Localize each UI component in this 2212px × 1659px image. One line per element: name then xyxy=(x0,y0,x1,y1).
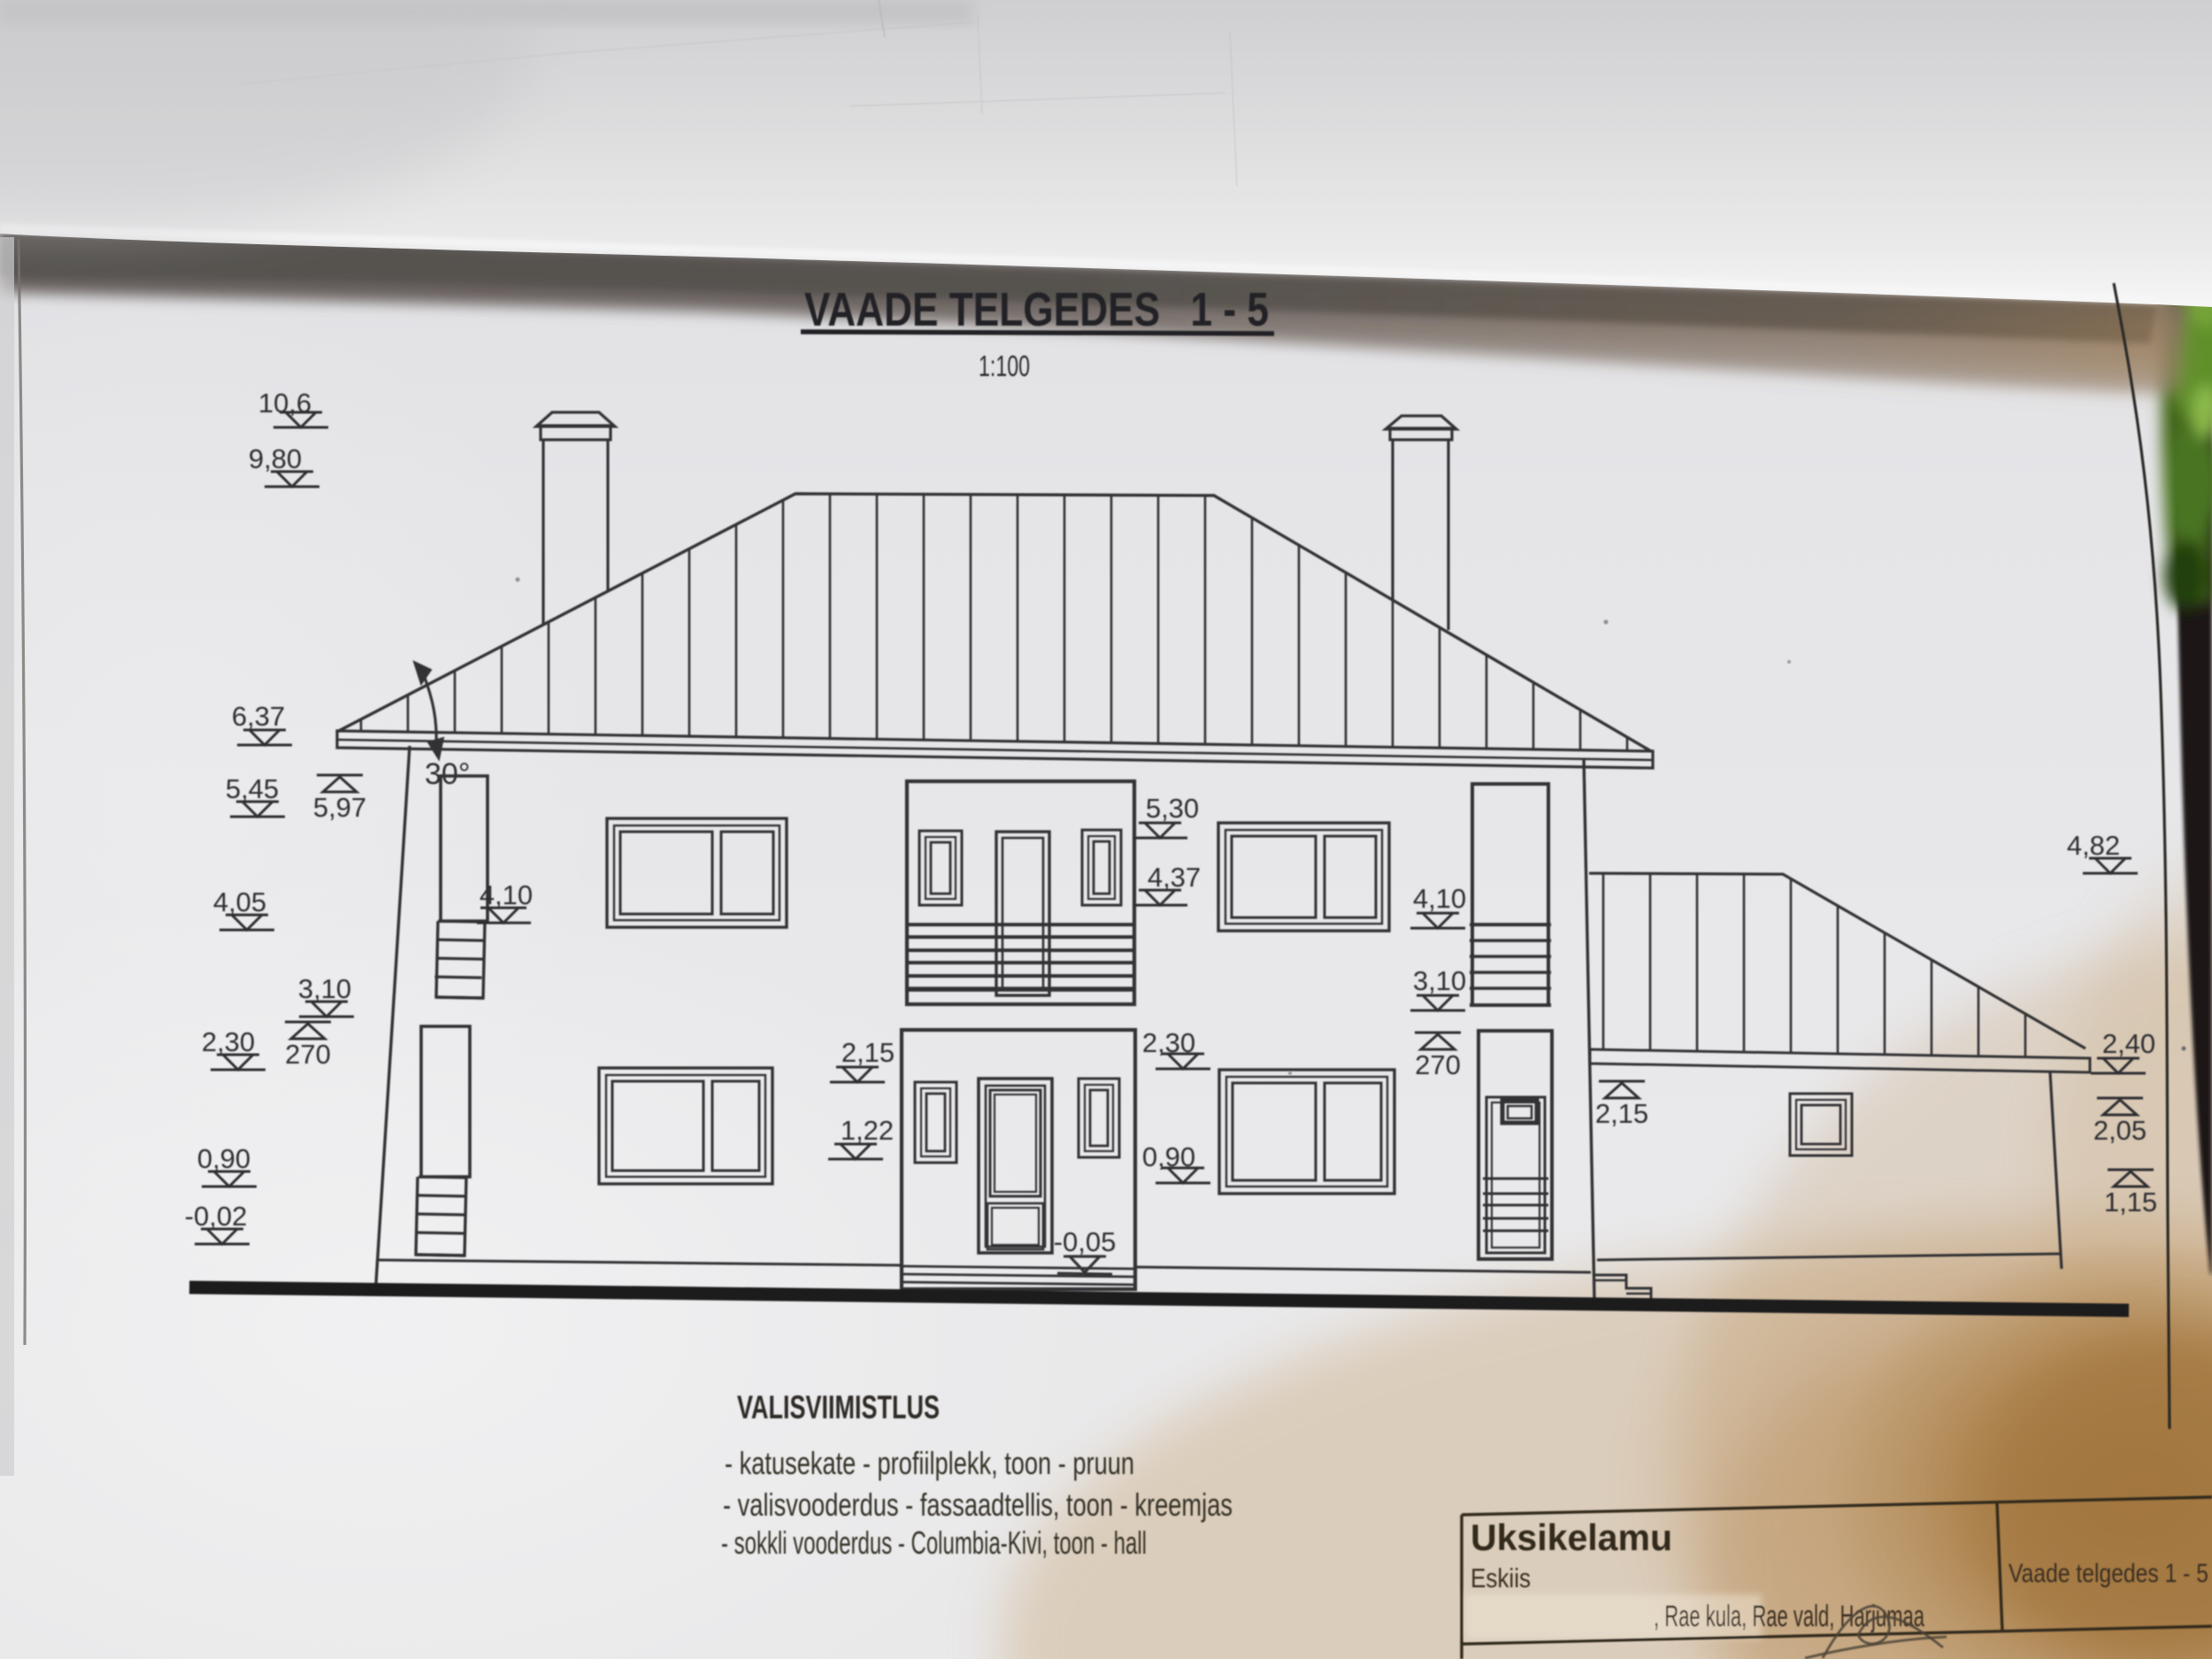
svg-text:1,22: 1,22 xyxy=(841,1115,894,1146)
svg-text:- valisvooderdus - fassaadtell: - valisvooderdus - fassaadtellis, toon -… xyxy=(723,1486,1233,1523)
svg-text:2,15: 2,15 xyxy=(1595,1098,1648,1129)
svg-text:2,15: 2,15 xyxy=(841,1037,895,1068)
svg-text:10,6: 10,6 xyxy=(258,388,311,419)
svg-text:3,10: 3,10 xyxy=(1413,965,1466,996)
svg-text:-0,05: -0,05 xyxy=(1054,1226,1117,1257)
svg-text:- katusekate - profiilplekk, t: - katusekate - profiilplekk, toon - pruu… xyxy=(725,1445,1134,1481)
svg-text:VAADE TELGEDES 1 - 5: VAADE TELGEDES 1 - 5 xyxy=(804,283,1269,336)
svg-text:5,30: 5,30 xyxy=(1146,793,1199,824)
svg-text:5,97: 5,97 xyxy=(313,792,366,823)
svg-text:5,45: 5,45 xyxy=(226,773,279,804)
svg-text:4,10: 4,10 xyxy=(480,879,533,910)
svg-text:6,37: 6,37 xyxy=(232,701,285,732)
svg-text:2,40: 2,40 xyxy=(2102,1028,2155,1059)
svg-text:-0,02: -0,02 xyxy=(185,1201,248,1232)
svg-text:1:100: 1:100 xyxy=(979,349,1030,382)
svg-text:270: 270 xyxy=(285,1039,331,1070)
svg-text:4,10: 4,10 xyxy=(1413,883,1466,914)
svg-text:4,82: 4,82 xyxy=(2067,830,2120,861)
svg-text:30°: 30° xyxy=(425,757,470,791)
svg-text:9,80: 9,80 xyxy=(249,443,302,474)
svg-text:1,15: 1,15 xyxy=(2104,1187,2157,1217)
svg-text:Uksikelamu: Uksikelamu xyxy=(1471,1517,1672,1558)
svg-text:4,37: 4,37 xyxy=(1148,862,1201,893)
svg-text:0,90: 0,90 xyxy=(197,1143,250,1174)
svg-text:VALISVIIMISTLUS: VALISVIIMISTLUS xyxy=(737,1389,940,1425)
svg-text:270: 270 xyxy=(1415,1049,1461,1080)
svg-text:4,05: 4,05 xyxy=(213,887,266,918)
svg-text:- sokkli vooderdus - Columbia-: - sokkli vooderdus - Columbia-Kivi, toon… xyxy=(721,1525,1147,1561)
svg-text:Eskiis: Eskiis xyxy=(1471,1563,1531,1594)
svg-text:3,10: 3,10 xyxy=(298,973,351,1004)
svg-text:2,30: 2,30 xyxy=(202,1026,255,1057)
svg-text:Vaade telgedes 1 - 5: Vaade telgedes 1 - 5 xyxy=(2008,1559,2208,1588)
svg-text:2,05: 2,05 xyxy=(2093,1115,2147,1146)
